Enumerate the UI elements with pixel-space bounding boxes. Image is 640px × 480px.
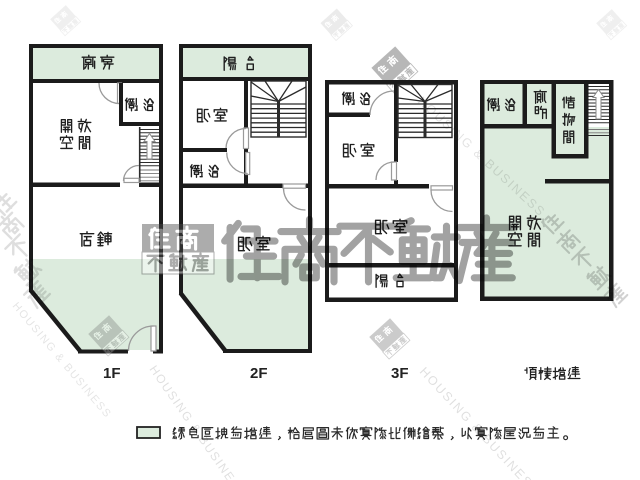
svg-text:1F: 1F [103,365,121,382]
svg-text:3F: 3F [391,365,409,382]
svg-text:2F: 2F [250,365,268,382]
